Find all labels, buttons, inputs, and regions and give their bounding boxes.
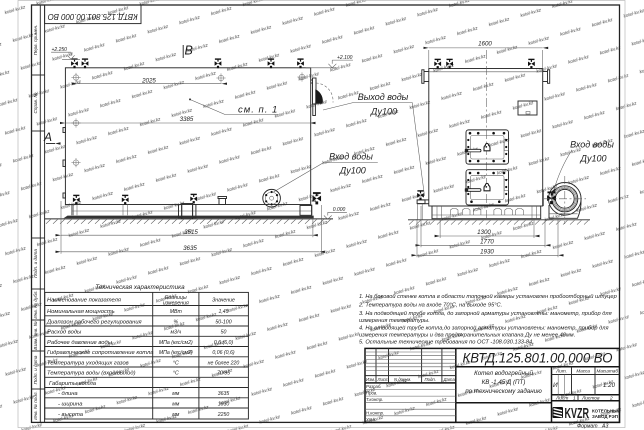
svg-text:2250: 2250 [217, 412, 230, 418]
svg-text:Подп. и дата: Подп. и дата [33, 355, 38, 384]
svg-text:°С: °С [173, 360, 179, 366]
svg-text:Температура уходящих газов: Температура уходящих газов [47, 360, 129, 366]
svg-text:Температура воды (вход/выход): Температура воды (вход/выход) [47, 371, 136, 377]
svg-text:МПа (кгс/см2): МПа (кгс/см2) [159, 350, 193, 356]
svg-text:Формат: Формат [577, 423, 598, 429]
svg-text:3635: 3635 [183, 245, 197, 252]
svg-text:N докум.: N докум. [394, 377, 411, 382]
svg-text:Номинальная мощность: Номинальная мощность [47, 309, 115, 315]
svg-text:1300: 1300 [477, 229, 491, 236]
svg-text:измерения температуры.: измерения температуры. [359, 318, 430, 324]
svg-text:КВТД.125.801.00.000 ВО: КВТД.125.801.00.000 ВО [48, 12, 138, 21]
svg-text:4. На отводящей трубе котла,д: 4. На отводящей трубе котла,до запорной … [359, 325, 609, 332]
svg-text:А: А [43, 130, 52, 144]
svg-text:Вход воды: Вход воды [329, 152, 373, 162]
svg-text:Лит.: Лит. [555, 368, 567, 373]
svg-text:70/95: 70/95 [217, 371, 230, 377]
svg-text:Разраб.: Разраб. [366, 384, 382, 389]
svg-text:Справ. №: Справ. № [33, 93, 38, 114]
svg-text:ЗАВОД РЭП: ЗАВОД РЭП [592, 414, 618, 419]
svg-text:1930: 1930 [218, 401, 230, 407]
svg-text:Наименование показателя: Наименование показателя [47, 298, 121, 304]
svg-text:Подп. и дата: Подп. и дата [33, 249, 38, 278]
svg-text:Масса: Масса [576, 368, 590, 373]
svg-text:Лист: Лист [555, 395, 568, 401]
svg-text:50-100: 50-100 [215, 319, 231, 325]
svg-text:1: 1 [573, 395, 576, 401]
svg-text:Лист: Лист [377, 377, 389, 382]
svg-text:Взам. инв. №: Взам. инв. № [33, 321, 38, 349]
svg-text:1930: 1930 [480, 248, 494, 255]
svg-text:2025: 2025 [141, 77, 156, 84]
svg-text:м3/ч: м3/ч [171, 330, 182, 336]
svg-text:измерения: измерения [163, 301, 189, 307]
svg-text:50: 50 [221, 330, 227, 336]
svg-text:Вход воды: Вход воды [570, 140, 614, 150]
svg-text:1:20: 1:20 [603, 382, 616, 389]
svg-text:3385: 3385 [180, 116, 194, 123]
svg-text:+2.100: +2.100 [337, 55, 353, 61]
svg-text:Ду100: Ду100 [339, 166, 366, 176]
svg-text:Значение: Значение [212, 298, 235, 304]
svg-text:не более 220: не более 220 [208, 360, 240, 366]
svg-text:Техническая характеристика: Техническая характеристика [95, 284, 185, 291]
svg-text:А3: А3 [601, 423, 608, 429]
svg-text:мм: мм [172, 391, 180, 397]
svg-text:- ширина: - ширина [58, 401, 83, 407]
svg-text:1. На боковой стенке котла в: 1. На боковой стенке котла в области топ… [359, 293, 617, 300]
svg-text:Габариты котла: Габариты котла [49, 381, 97, 387]
svg-text:0.000: 0.000 [333, 207, 346, 213]
svg-text:мм: мм [172, 401, 180, 407]
svg-text:Котел водогрейный: Котел водогрейный [474, 370, 533, 377]
svg-text:Перв. примен.: Перв. примен. [33, 25, 38, 56]
svg-text:0,06 (0,6): 0,06 (0,6) [212, 350, 234, 356]
svg-text:2. Температура воды на входе: 2. Температура воды на входе 70°С, на вы… [358, 303, 502, 309]
svg-text:1600: 1600 [478, 41, 492, 48]
svg-text:Листов: Листов [581, 395, 600, 401]
svg-text:KVZR: KVZR [565, 406, 590, 422]
svg-text:Т.контр.: Т.контр. [366, 397, 383, 402]
svg-text:Рабочее давление воды: Рабочее давление воды [47, 340, 113, 346]
svg-text:мм: мм [172, 412, 180, 418]
svg-text:см. п. 1: см. п. 1 [238, 105, 278, 116]
svg-text:Диапазон рабочего регулировани: Диапазон рабочего регулирования [46, 319, 142, 325]
svg-text:+2.250: +2.250 [52, 47, 68, 53]
svg-text:Подп.: Подп. [425, 377, 436, 382]
svg-text:В: В [185, 44, 193, 58]
svg-text:КВ -1,45 Д (ПТ): КВ -1,45 Д (ПТ) [482, 379, 526, 386]
svg-text:МПа (кгс/см2): МПа (кгс/см2) [159, 340, 193, 346]
svg-text:Изм.: Изм. [366, 377, 375, 382]
svg-text:Дата: Дата [443, 377, 456, 382]
svg-text:И: И [553, 382, 558, 389]
svg-text:Ду100: Ду100 [580, 154, 607, 164]
svg-text:1,45: 1,45 [218, 309, 228, 315]
svg-text:Инв. № подл.: Инв. № подл. [33, 391, 38, 420]
svg-text:2: 2 [609, 395, 613, 401]
svg-text:МВт: МВт [170, 309, 183, 315]
svg-text:Инв. № дубл.: Инв. № дубл. [33, 290, 38, 318]
svg-text:Пров.: Пров. [366, 391, 377, 396]
svg-text:3635: 3635 [218, 391, 230, 397]
svg-text:КОТЕЛЬНЫЙ: КОТЕЛЬНЫЙ [592, 408, 621, 413]
svg-text:КВТД.125.801.00.000 ВО: КВТД.125.801.00.000 ВО [463, 349, 613, 365]
svg-text:0,6 (6,0): 0,6 (6,0) [214, 340, 234, 346]
svg-text:1770: 1770 [480, 239, 494, 246]
svg-text:- высота: - высота [58, 412, 84, 418]
svg-text:Масштаб: Масштаб [596, 368, 618, 373]
svg-text:Ду100: Ду100 [370, 107, 397, 117]
svg-text:3515: 3515 [184, 229, 198, 236]
svg-text:3. На подводящей трубе котла,: 3. На подводящей трубе котла, до запорно… [359, 310, 612, 317]
svg-text:по техническому заданию: по техническому заданию [465, 388, 542, 395]
svg-text:Н.контр.: Н.контр. [366, 410, 384, 415]
svg-text:измерения температуры и два пр: измерения температуры и два предохраните… [359, 333, 575, 339]
svg-text:%: % [173, 319, 178, 325]
svg-text:5. Остальные технические треб: 5. Остальные технические требования по О… [359, 340, 534, 346]
svg-text:- длина: - длина [58, 391, 78, 397]
svg-text:Расход воды: Расход воды [47, 330, 82, 336]
svg-text:Гидравлическое сопротивление к: Гидравлическое сопротивление котла [47, 350, 154, 356]
svg-text:Утв.: Утв. [366, 417, 376, 422]
svg-text:°С: °С [173, 371, 179, 377]
svg-text:Выход воды: Выход воды [358, 92, 409, 102]
